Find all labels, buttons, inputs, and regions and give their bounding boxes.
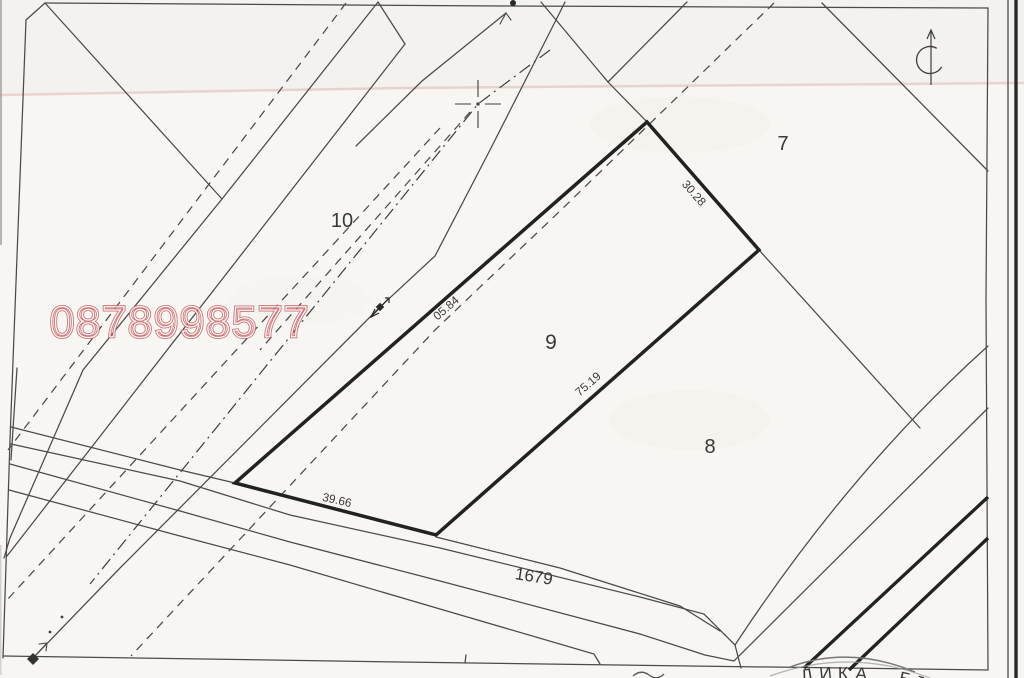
svg-text:А: А bbox=[855, 663, 869, 678]
svg-text:8: 8 bbox=[704, 436, 715, 458]
svg-text:К: К bbox=[838, 663, 849, 678]
svg-text:9: 9 bbox=[545, 331, 557, 354]
svg-text:10: 10 bbox=[331, 210, 353, 232]
svg-text:7: 7 bbox=[777, 133, 788, 155]
svg-text:0878998577: 0878998577 bbox=[50, 299, 310, 347]
svg-text:И: И bbox=[818, 663, 833, 678]
